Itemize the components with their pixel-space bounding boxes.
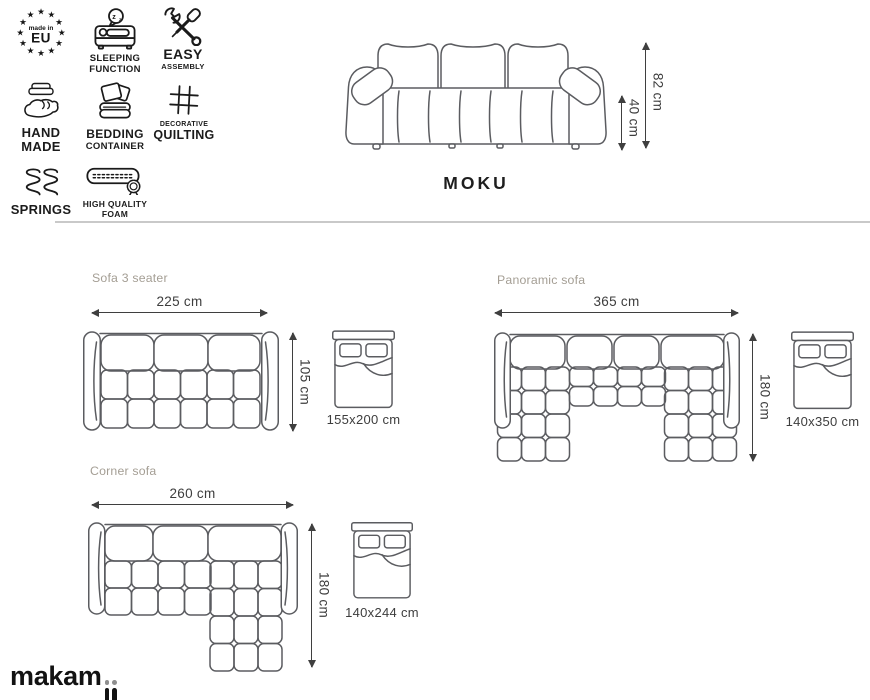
bedding-container-icon xyxy=(95,82,135,126)
svg-text:★: ★ xyxy=(55,38,63,48)
svg-text:★: ★ xyxy=(55,17,63,27)
width-arrow xyxy=(92,504,293,505)
logo-ii xyxy=(112,680,117,700)
feature-high-quality-foam: HIGH QUALITY FOAM xyxy=(73,166,157,219)
bed-icon xyxy=(791,331,854,410)
top-view-sofa-3-seater xyxy=(83,330,279,432)
eu-label: EU xyxy=(31,31,51,46)
bed-icon xyxy=(332,330,395,409)
width-label: 365 cm xyxy=(529,294,704,309)
total-height-label: 82 cm xyxy=(651,73,666,111)
total-height-arrow xyxy=(645,43,646,148)
bed-size-label: 155x200 cm xyxy=(302,412,425,427)
logo-i-dot xyxy=(105,680,110,685)
feature-label: FOAM xyxy=(73,209,157,219)
hand-made-icon xyxy=(22,82,60,124)
feature-made-in-eu: ★★★ ★★★ ★★★ ★★★ made in EU xyxy=(8,5,74,63)
depth-label: 105 cm xyxy=(298,359,313,405)
feature-label: SLEEPING xyxy=(77,53,153,64)
svg-text:★: ★ xyxy=(58,27,66,37)
feature-label: CONTAINER xyxy=(73,141,157,152)
width-arrow xyxy=(92,312,267,313)
feature-label: MADE xyxy=(4,140,78,154)
bed-size-label: 140x350 cm xyxy=(762,414,870,429)
brand-logo-text: makam xyxy=(10,661,102,691)
bed-size-label: 140x244 cm xyxy=(320,605,444,620)
brand-logo: makam xyxy=(10,661,117,700)
feature-label: FUNCTION xyxy=(77,64,153,75)
svg-text:★: ★ xyxy=(27,45,35,55)
width-label: 260 cm xyxy=(105,486,280,501)
front-view-drawing xyxy=(342,32,610,154)
seat-height-arrow xyxy=(621,96,622,150)
made-in-eu-icon: ★★★ ★★★ ★★★ ★★★ made in EU xyxy=(12,5,70,63)
feature-label: ASSEMBLY xyxy=(145,62,221,71)
high-quality-foam-icon xyxy=(86,166,144,195)
variant-title-panoramic-sofa: Panoramic sofa xyxy=(497,273,585,287)
feature-label: EASY xyxy=(145,47,221,62)
logo-i-dot xyxy=(112,680,117,685)
feature-decorative-quilting: DECORATIVE QUILTING xyxy=(144,85,224,142)
feature-label: HIGH QUALITY xyxy=(73,199,157,209)
svg-text:★: ★ xyxy=(27,9,35,19)
svg-text:★: ★ xyxy=(48,45,56,55)
depth-arrow xyxy=(752,334,753,461)
top-view-panoramic-sofa xyxy=(494,331,740,462)
svg-text:★: ★ xyxy=(37,48,45,58)
logo-i-stem xyxy=(112,688,117,700)
feature-easy-assembly: EASY ASSEMBLY xyxy=(145,6,221,71)
feature-label: SPRINGS xyxy=(3,203,79,217)
depth-arrow xyxy=(311,524,312,667)
variant-title-sofa-3-seater: Sofa 3 seater xyxy=(92,271,168,285)
feature-label: QUILTING xyxy=(144,129,224,142)
easy-assembly-icon xyxy=(162,6,204,46)
logo-ii xyxy=(105,680,110,700)
spec-sheet: ★★★ ★★★ ★★★ ★★★ made in EU z z SLEEPING … xyxy=(0,0,870,700)
section-divider xyxy=(55,221,870,223)
feature-label: HAND xyxy=(4,126,78,140)
width-label: 225 cm xyxy=(92,294,267,309)
svg-text:z: z xyxy=(112,13,116,21)
seat-height-label: 40 cm xyxy=(627,99,642,137)
variant-title-corner-sofa: Corner sofa xyxy=(90,464,156,478)
feature-sleeping-function: z z SLEEPING FUNCTION xyxy=(77,8,153,75)
depth-arrow xyxy=(292,333,293,431)
svg-text:★: ★ xyxy=(37,7,45,17)
svg-text:★: ★ xyxy=(19,38,27,48)
svg-text:★: ★ xyxy=(16,27,24,37)
springs-icon xyxy=(23,165,60,198)
logo-i-stem xyxy=(105,688,110,700)
feature-hand-made: HAND MADE xyxy=(4,82,78,153)
feature-springs: SPRINGS xyxy=(3,165,79,217)
product-name: MOKU xyxy=(342,173,610,194)
decorative-quilting-icon xyxy=(169,85,199,115)
width-arrow xyxy=(495,312,738,313)
top-view-corner-sofa xyxy=(88,521,298,673)
sleeping-function-icon: z z xyxy=(93,8,137,50)
bed-icon xyxy=(351,521,413,600)
